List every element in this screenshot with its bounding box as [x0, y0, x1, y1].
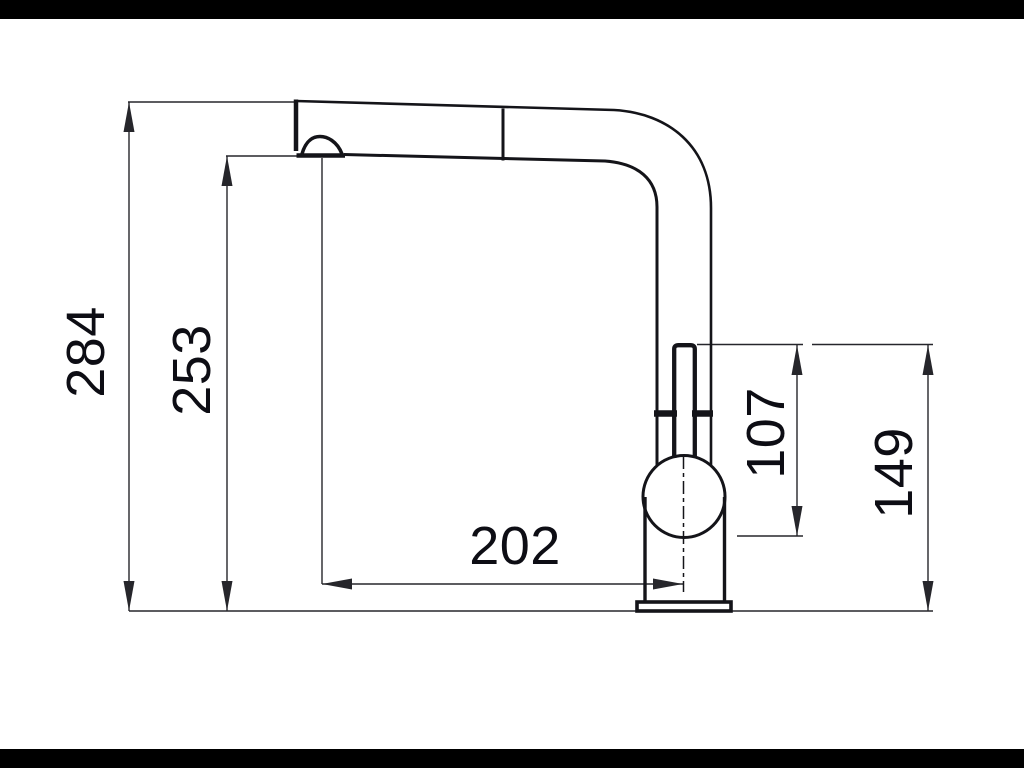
faucet-line-art [0, 0, 1024, 768]
base-plate [637, 602, 731, 611]
letterbox-bottom-bar [0, 749, 1024, 768]
letterbox-top-bar [0, 0, 1024, 19]
lever-handle [674, 345, 695, 458]
arrowhead-up-icon [222, 156, 233, 186]
dim-label-spout-reach: 202 [469, 519, 561, 573]
arrowhead-down-icon [923, 581, 934, 611]
arrowhead-up-icon [923, 345, 934, 375]
arrowhead-left-icon [322, 579, 352, 590]
arrowhead-right-icon [653, 579, 683, 590]
arrowhead-down-icon [222, 581, 233, 611]
dim-label-handle-to-base: 149 [867, 427, 921, 519]
arrowhead-down-icon [792, 506, 803, 536]
dim-label-overall-height: 284 [59, 306, 113, 398]
dimension-outlet-height [222, 156, 309, 611]
spout-inner-edge [344, 155, 657, 467]
aerator-bump [302, 137, 342, 155]
drawing-canvas: 284 253 202 107 149 [0, 0, 1024, 768]
arrowhead-up-icon [792, 345, 803, 375]
dim-label-handle-to-cartridge: 107 [739, 387, 793, 479]
arrowhead-up-icon [124, 102, 135, 132]
arrowhead-down-icon [124, 581, 135, 611]
dim-label-outlet-height: 253 [165, 324, 219, 416]
